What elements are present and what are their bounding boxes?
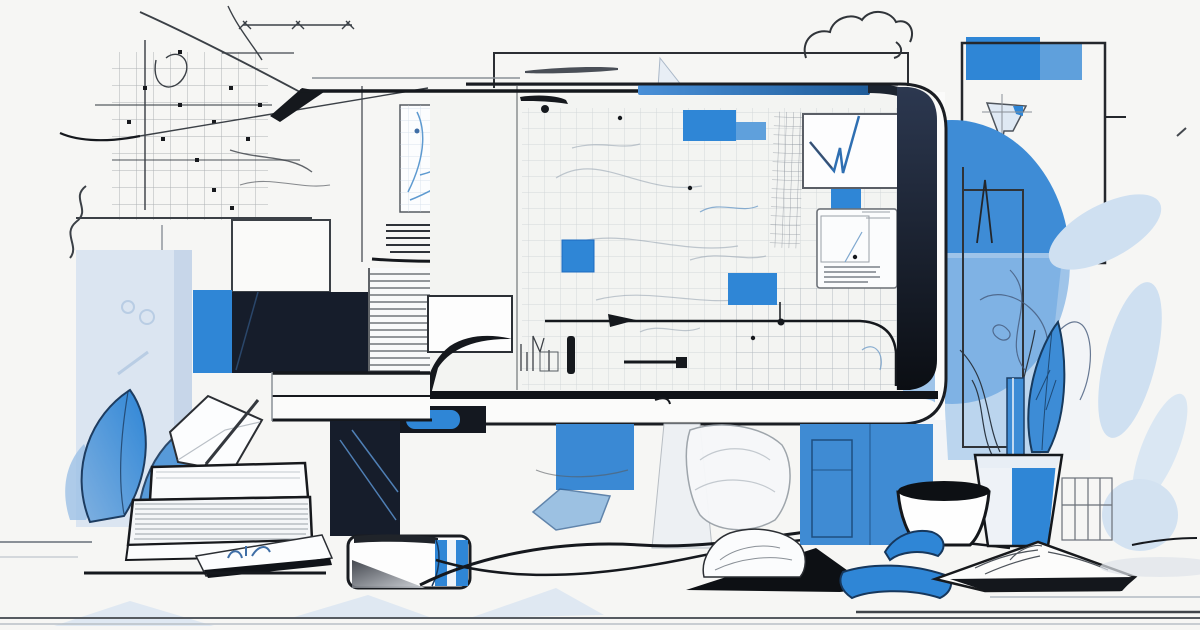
desk-scene-illustration	[0, 0, 1200, 630]
pencil	[525, 67, 618, 73]
bottom-bezel-band	[430, 391, 938, 399]
thick-wedge-stroke	[270, 88, 324, 122]
measure-line	[222, 21, 354, 53]
right-bezel	[897, 87, 937, 390]
pale-floor-triangle	[291, 595, 432, 618]
crumpled-shape	[686, 425, 790, 530]
under-shelf-dark-block	[330, 421, 400, 536]
pale-floor-triangle	[54, 601, 214, 626]
crumpled-paper-front	[703, 529, 805, 577]
monitor-chin	[430, 399, 938, 421]
dense-grid-strip	[770, 112, 805, 249]
desk-shelf	[272, 372, 432, 421]
pale-floor-triangle	[470, 588, 604, 618]
blue-stem	[1007, 378, 1024, 458]
cloud-sketch	[805, 12, 912, 58]
light-blue-rectangle	[1040, 43, 1082, 80]
blue-patch	[556, 424, 634, 490]
document-panel	[817, 209, 897, 288]
outlined-square-left	[232, 220, 330, 292]
w-line-chart-panel	[803, 114, 898, 188]
white-box-eraser	[348, 534, 470, 588]
tick-mark	[1177, 128, 1186, 136]
squiggle-line	[70, 186, 86, 258]
vertical-bar-mark	[567, 336, 575, 374]
top-blue-strip	[638, 85, 870, 95]
blue-glass-shard	[533, 489, 610, 530]
illustration-canvas	[0, 0, 1200, 630]
